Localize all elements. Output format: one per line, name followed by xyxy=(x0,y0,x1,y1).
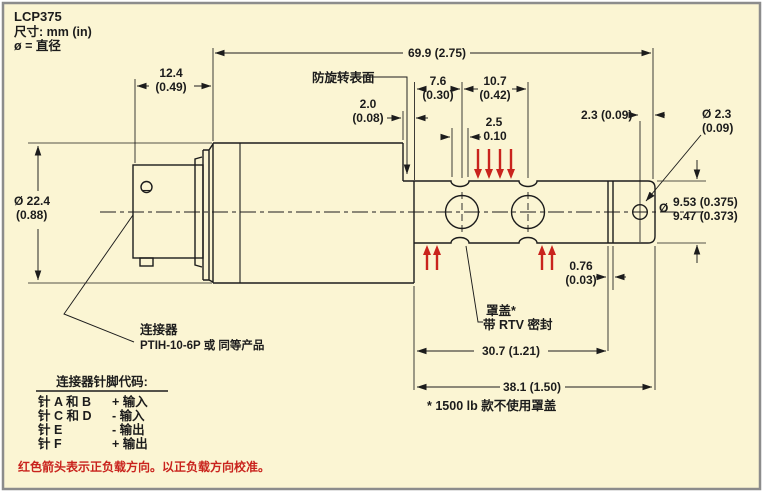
dim-step-mm: 2.0 xyxy=(360,97,377,111)
dim-band-mm: 0.76 xyxy=(569,259,593,273)
diameter-note: ø = 直径 xyxy=(14,38,61,53)
pin-row-signal: + 输入 xyxy=(112,394,148,409)
dim-76-in: (0.30) xyxy=(422,88,453,102)
dim-front-mm: 12.4 xyxy=(159,66,183,80)
pin-row-label: 针 C 和 D xyxy=(38,408,91,423)
load-direction-note: 红色箭头表示正负载方向。以正负载方向校准。 xyxy=(18,459,270,474)
pin-row-label: 针 E xyxy=(38,422,62,437)
end-hole-dia-in: (0.09) xyxy=(702,121,733,135)
dim-overall-text: 69.9 (2.75) xyxy=(408,46,466,60)
dim-cover-text: 30.7 (1.21) xyxy=(482,344,540,358)
dim-total-text: 38.1 (1.50) xyxy=(503,380,561,394)
units-note: 尺寸: mm (in) xyxy=(14,24,92,39)
pin-row-signal: + 输出 xyxy=(112,436,148,451)
anti-rotation-label: 防旋转表面 xyxy=(312,70,375,85)
pin-row-label: 针 A 和 B xyxy=(38,394,91,409)
dim-107-mm: 10.7 xyxy=(483,74,507,88)
pin-row-signal: - 输入 xyxy=(112,408,145,423)
cover-footnote: * 1500 lb 款不使用罩盖 xyxy=(427,398,557,413)
dim-step-in: (0.08) xyxy=(352,111,383,125)
dim-groove-in: 0.10 xyxy=(483,129,507,143)
connector-label-line1: 连接器 xyxy=(140,322,178,337)
connector-label-line2: PTIH-10-6P 或 同等产品 xyxy=(140,338,264,352)
pin-table-title: 连接器针脚代码: xyxy=(56,374,148,389)
end-hole-dia-mm: Ø 2.3 xyxy=(702,107,732,121)
dim-groove-mm: 2.5 xyxy=(486,115,503,129)
dim-body-dia-in: (0.88) xyxy=(16,208,47,222)
drawing-canvas: LCP375 尺寸: mm (in) ø = 直径 xyxy=(0,0,763,492)
dim-body-dia-mm: Ø 22.4 xyxy=(14,194,50,208)
load-cell-dimension-drawing: LCP375 尺寸: mm (in) ø = 直径 xyxy=(0,0,763,492)
pin-row-label: 针 F xyxy=(38,436,62,451)
shaft-dia-lower: 9.47 (0.373) xyxy=(673,209,738,223)
dim-107-in: (0.42) xyxy=(479,88,510,102)
pin-row-signal: - 输出 xyxy=(112,422,145,437)
cover-label-line2: 带 RTV 密封 xyxy=(483,317,553,332)
dim-76-mm: 7.6 xyxy=(430,74,447,88)
dim-front-in: (0.49) xyxy=(155,80,186,94)
model-number: LCP375 xyxy=(14,9,62,24)
dim-band-in: (0.03) xyxy=(565,273,596,287)
cover-label-line1: 罩盖* xyxy=(486,303,516,318)
shaft-dia-symbol: Ø xyxy=(659,201,668,215)
dim-23-text: 2.3 (0.09) xyxy=(581,108,632,122)
shaft-dia-upper: 9.53 (0.375) xyxy=(673,195,738,209)
